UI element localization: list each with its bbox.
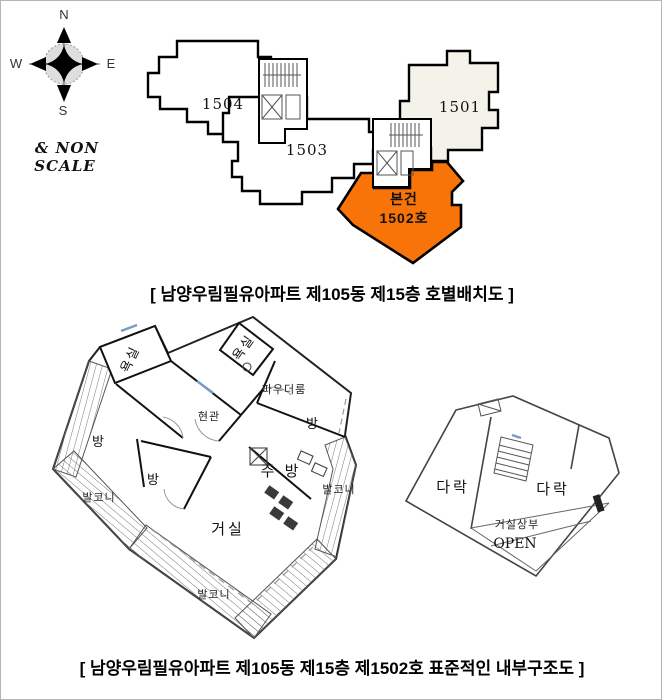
west-arrow-icon [30,57,46,71]
attic-left-label: 다락 [436,479,470,496]
room-1-label: 방 [92,434,106,449]
site-plan: 1504 1503 1501 본건 1502호 [148,41,498,263]
open-label-line1: 거실상부 [495,518,539,531]
kitchen-label: 주 방 [261,463,302,480]
compass-south-label: S [59,103,68,118]
powder-room-label: 파우더룸 [262,383,306,396]
floorplan-drawing: N S W E & NON SCALE [1,1,662,700]
south-arrow-icon [57,85,71,102]
balcony-bottom-label: 발코니 [197,588,230,601]
compass-east-label: E [107,56,116,71]
room-2-label: 방 [147,472,161,487]
open-label-line2: OPEN [493,536,536,552]
scale-note-line1: & NON [35,139,100,157]
subject-unit-label-line1: 본건 [390,191,418,207]
east-arrow-icon [82,57,98,71]
compass-north-label: N [59,7,68,22]
unit-interior-plan: 욕실 욕실 파우더룸 현관 방 방 방 주 방 거실 발코니 발코니 발코니 [53,317,356,638]
unit-1504-label: 1504 [202,95,244,113]
north-arrow-icon [57,27,71,43]
caption-unit-layout: [ 남양우림필유아파트 제105동 제15층 호별배치도 ] [1,280,662,305]
scale-note: & NON SCALE [34,139,99,175]
unit-1501-label: 1501 [439,98,481,116]
scale-note-line2: SCALE [34,157,95,175]
appraisal-floorplan-page: N S W E & NON SCALE [0,0,662,700]
balcony-right-label: 발코니 [322,483,355,496]
caption-interior-structure: [ 남양우림필유아파트 제105동 제15층 제1502호 표준적인 내부구조도… [1,654,662,679]
compass-west-label: W [10,56,23,71]
subject-unit-label-line2: 1502호 [379,210,428,226]
living-room-label: 거실 [211,521,245,538]
attic-right-label: 다락 [536,481,570,498]
balcony-left-label: 발코니 [82,491,115,504]
unit-1503-label: 1503 [286,141,328,159]
entrance-label: 현관 [198,410,220,423]
attic-plan: 다락 다락 거실상부 OPEN [406,396,619,576]
compass-rose: N S W E [10,7,116,118]
room-3-label: 방 [306,416,320,431]
